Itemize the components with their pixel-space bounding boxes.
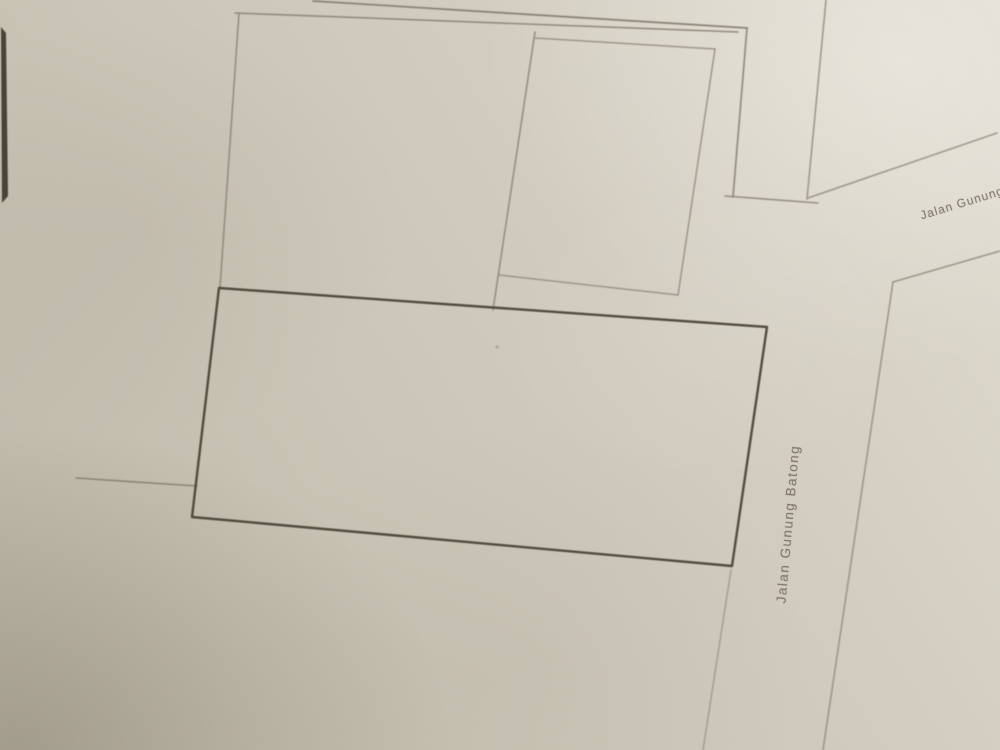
west-boundary-stub (76, 478, 197, 486)
right-parcel-east-edge (678, 49, 715, 295)
right-parcel-south-edge (499, 275, 678, 295)
junction-boundary (725, 196, 818, 203)
road-west-edge-lower (703, 570, 731, 750)
parcel-divider (493, 32, 535, 310)
diagonal-road-north-edge (808, 133, 997, 198)
photo-edge-strip (1, 27, 8, 203)
main-parcel-outline (192, 288, 767, 566)
diagonal-road-south-edge (893, 251, 1000, 282)
site-plan-photo: Jalan Gunung Batong Jalan Gunung (0, 0, 1000, 750)
left-parcel-west-edge (220, 13, 239, 288)
right-parcel-north-edge (535, 38, 715, 49)
road-east-edge-lower (823, 282, 893, 750)
road-east-edge-upper (807, 0, 826, 199)
paper-speck (495, 345, 498, 348)
block-corner-east-edge (733, 28, 747, 197)
site-plan-drawing (0, 0, 1000, 750)
